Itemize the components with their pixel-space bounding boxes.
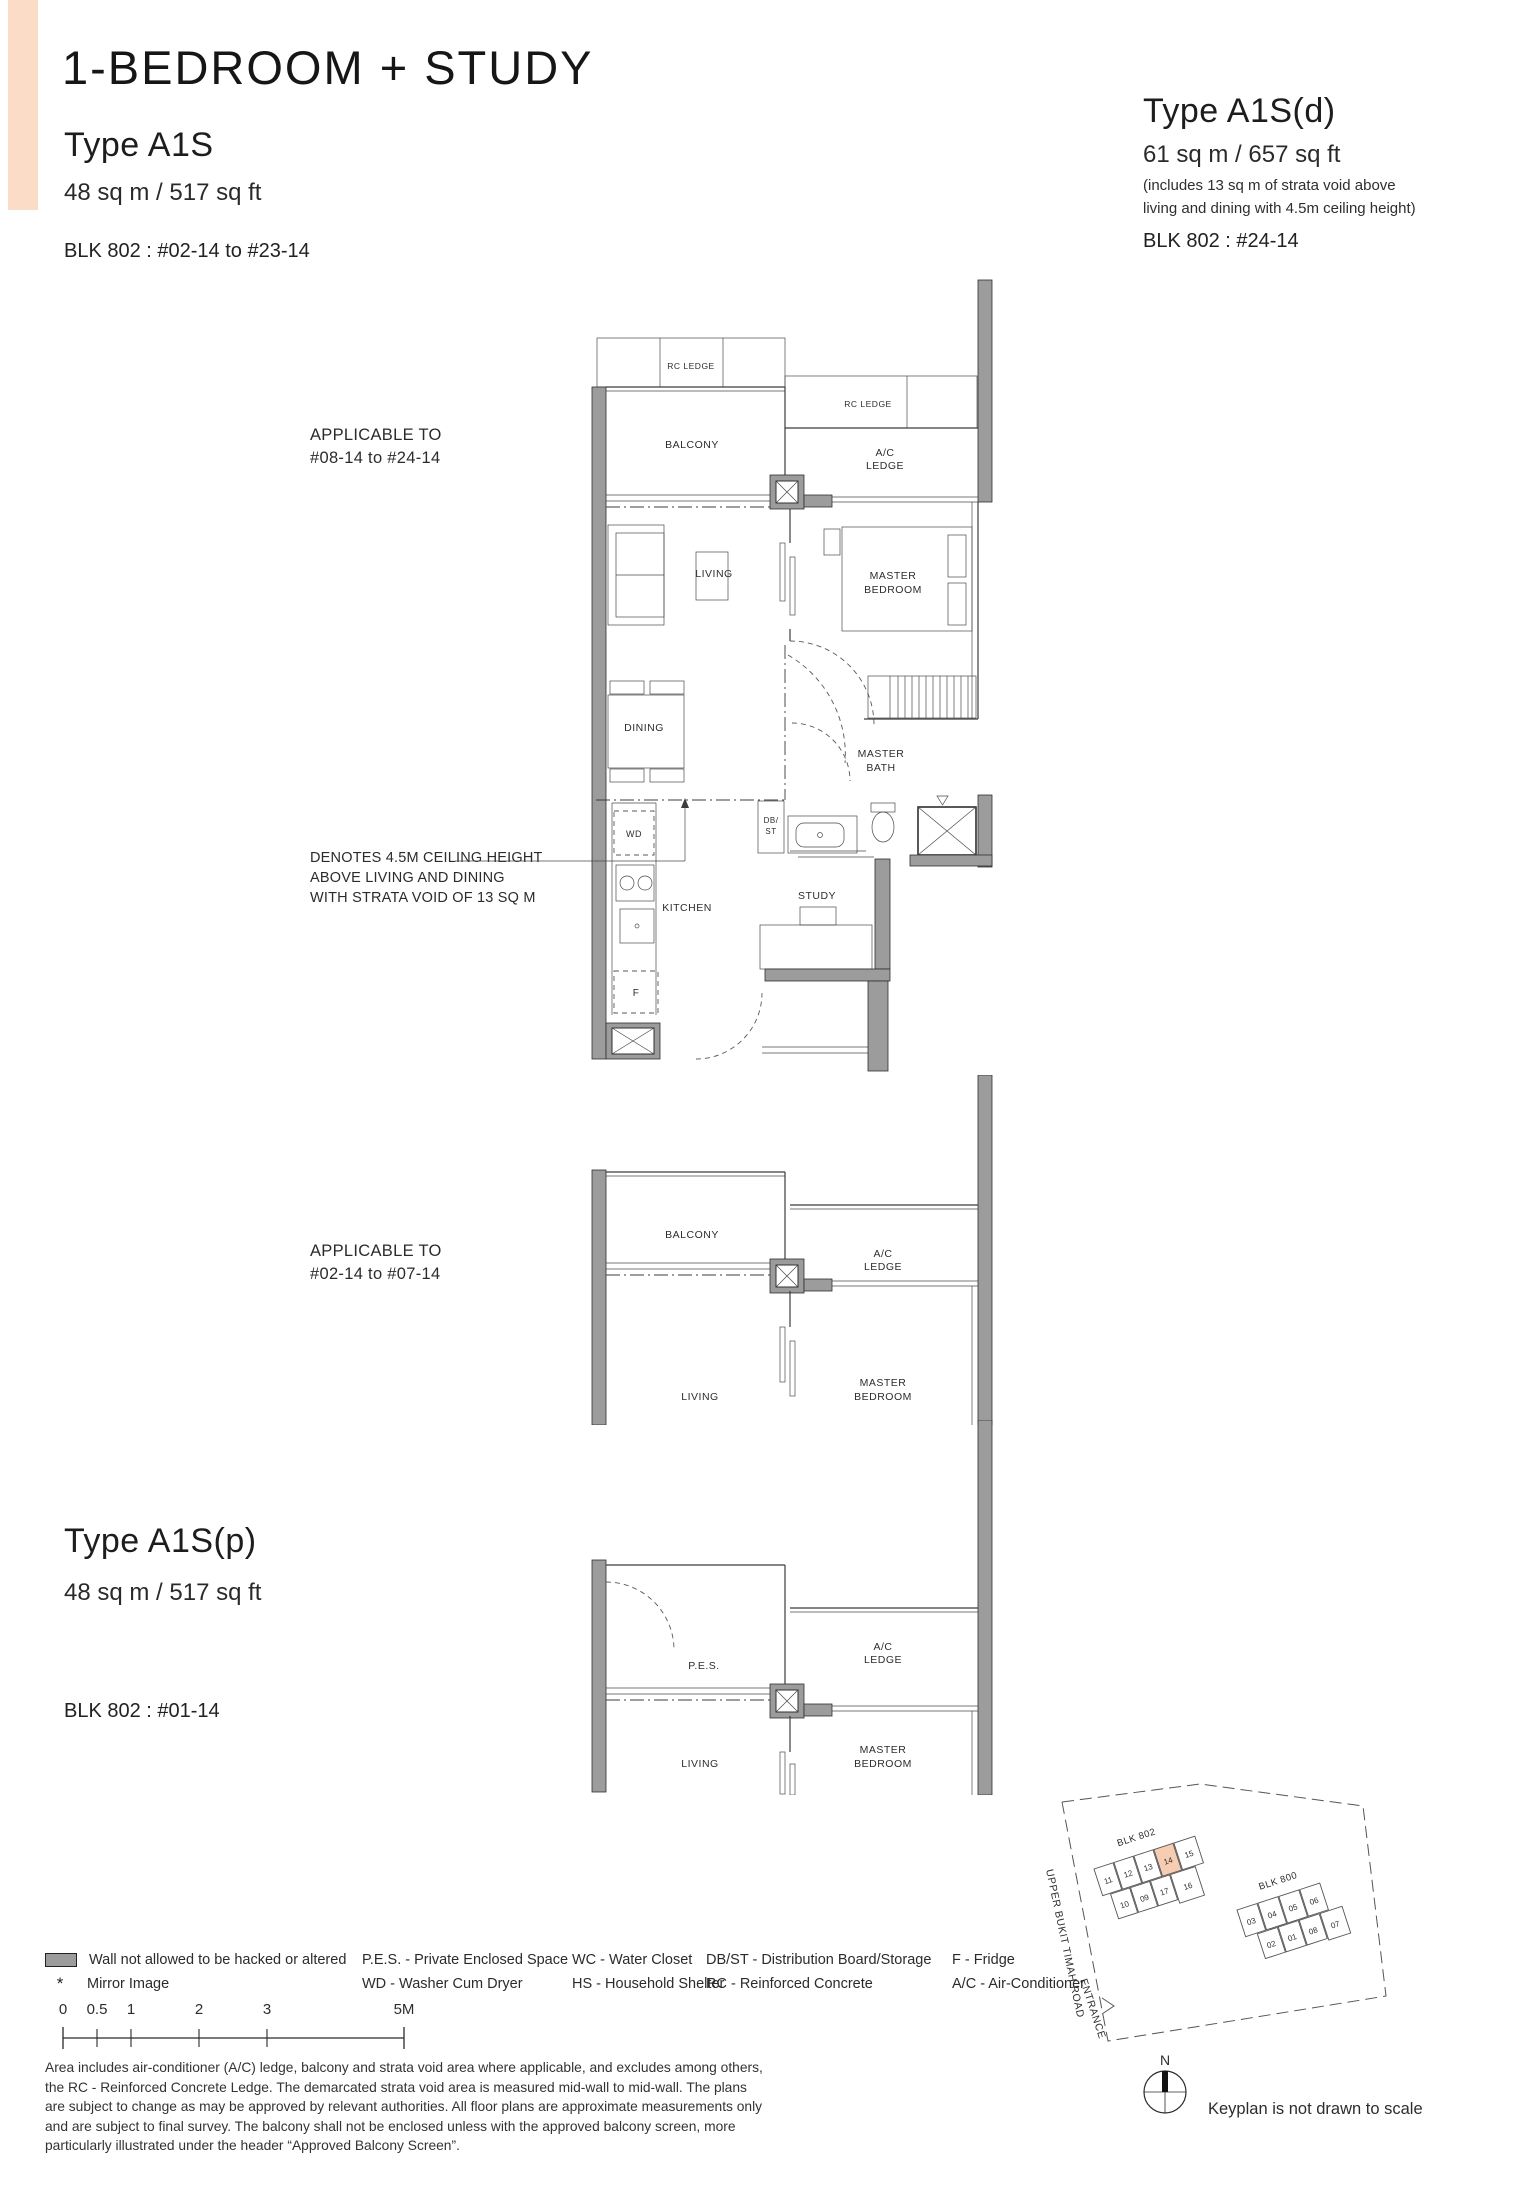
wall-right-top: [978, 280, 992, 502]
legend-item: WD - Washer Cum Dryer: [362, 1972, 568, 1996]
type-a1s-name: Type A1S: [64, 126, 261, 165]
legend-col-wall: Wall not allowed to be hacked or altered…: [45, 1948, 346, 1996]
room-label-bath-1: MASTER: [858, 748, 905, 760]
legend-wall-label: Wall not allowed to be hacked or altered: [89, 1952, 346, 1968]
bath-door-swing: [792, 723, 850, 781]
room-label-ac-1: A/C: [873, 1248, 892, 1260]
type-a1sd-block-range: BLK 802 : #24-14: [1143, 230, 1299, 253]
type-a1sp-block-range: BLK 802 : #01-14: [64, 1700, 220, 1723]
strata-void-boundary: [455, 645, 845, 861]
legend-col-3: DB/ST - Distribution Board/Storage RC - …: [706, 1948, 931, 1996]
wall-swatch: [45, 1953, 77, 1967]
desk: [760, 925, 872, 969]
room-label-study: STUDY: [798, 890, 836, 902]
scale-label-0: 0: [59, 2001, 67, 2018]
wc-bowl: [872, 812, 894, 842]
wall-left: [592, 1170, 606, 1425]
type-a1sp-name: Type A1S(p): [64, 1522, 261, 1561]
room-label-master-1: MASTER: [860, 1744, 907, 1756]
room-label-balcony: BALCONY: [665, 439, 719, 451]
scale-bar: 0 0.5 1 2 3 5M: [45, 1998, 425, 2058]
blk800-label: BLK 800: [1257, 1870, 1298, 1893]
blk802-label: BLK 802: [1116, 1826, 1157, 1849]
wall-right: [978, 1075, 992, 1425]
bedroom-door-swing: [790, 641, 874, 725]
room-label-ac-1: A/C: [875, 447, 894, 459]
keyplan-blk-802: BLK 802 11 12 13 14 15 10 09 17 16: [1087, 1815, 1213, 1925]
type-a1s-block-range: BLK 802 : #02-14 to #23-14: [64, 240, 310, 263]
void-arrow: [681, 798, 689, 808]
room-label-living: LIVING: [681, 1758, 718, 1770]
rc-ledge-top-left: RC LEDGE: [597, 338, 785, 387]
basin: [796, 823, 844, 847]
wardrobe: [868, 676, 976, 718]
entrance-arrow: [1102, 1998, 1114, 2014]
pillow: [948, 535, 966, 577]
type-a1sd-area: 61 sq m / 657 sq ft: [1143, 141, 1416, 169]
floorplan-partial-low-floors: BALCONY A/C LEDGE LIVING MASTER BEDROOM: [420, 1075, 1020, 1425]
wall-study-bottom: [765, 969, 890, 981]
monitor: [800, 907, 836, 925]
chair: [610, 769, 644, 782]
wall-left: [592, 1560, 606, 1792]
wall-lower-right: [868, 981, 888, 1071]
chair: [610, 681, 644, 694]
type-a1sp-area: 48 sq m / 517 sq ft: [64, 1579, 261, 1607]
wall-left: [592, 387, 606, 1059]
floor-trap: [937, 796, 948, 805]
legend-item: DB/ST - Distribution Board/Storage: [706, 1948, 931, 1972]
nightstand: [824, 529, 840, 555]
type-a1sd-area-note-2: living and dining with 4.5m ceiling heig…: [1143, 197, 1416, 220]
balcony: BALCONY: [606, 387, 785, 507]
legend-col-1: P.E.S. - Private Enclosed Space WD - Was…: [362, 1948, 568, 1996]
study: STUDY: [760, 859, 890, 1071]
floorplan-page: 1-BEDROOM + STUDY Type A1S 48 sq m / 517…: [0, 0, 1536, 2208]
scale-label-05: 0.5: [87, 2001, 108, 2018]
type-a1sp-block: Type A1S(p) 48 sq m / 517 sq ft: [64, 1522, 261, 1607]
type-a1s-block: Type A1S 48 sq m / 517 sq ft: [64, 126, 261, 207]
wall-study-right: [875, 859, 890, 969]
scale-label-2: 2: [195, 2001, 203, 2018]
mirror-image-icon: *: [45, 1974, 75, 1994]
room-label-ac-2: LEDGE: [866, 460, 904, 472]
room-label-ac-2: LEDGE: [864, 1261, 902, 1273]
corner-pillar: [770, 475, 832, 509]
living-room: LIVING: [608, 525, 733, 625]
type-a1sd-area-note-1: (includes 13 sq m of strata void above: [1143, 174, 1416, 197]
wall-bath-bottom: [910, 855, 992, 866]
type-a1sd-name: Type A1S(d): [1143, 92, 1416, 131]
keyplan-caption: Keyplan is not drawn to scale: [1208, 2100, 1423, 2118]
road-label: UPPER BUKIT TIMAH ROAD: [1043, 1868, 1086, 2019]
room-label-bath-2: BATH: [866, 762, 895, 774]
room-label-dbst-2: ST: [765, 827, 776, 836]
room-label-rc-ledge-2: RC LEDGE: [844, 399, 891, 409]
scale-label-5m: 5M: [394, 2001, 415, 2018]
entry-door-swing: [696, 993, 762, 1059]
dining-area: DINING: [608, 681, 684, 782]
hob: [616, 865, 654, 901]
room-label-dining: DINING: [624, 722, 664, 734]
kitchen: WD F KITCHEN: [612, 803, 712, 1015]
type-a1sd-block: Type A1S(d) 61 sq m / 657 sq ft (include…: [1143, 92, 1416, 220]
room-label-rc-ledge-1: RC LEDGE: [667, 361, 714, 371]
household-shelter: [606, 1023, 660, 1059]
room-label-pes: P.E.S.: [688, 1660, 719, 1672]
legend-item: WC - Water Closet: [572, 1948, 724, 1972]
chair: [650, 769, 684, 782]
floorplan-partial-pes: P.E.S. A/C LEDGE LIVING MASTER BEDROOM: [420, 1420, 1020, 1795]
room-label-master-1: MASTER: [870, 570, 917, 582]
legend-item: RC - Reinforced Concrete: [706, 1972, 931, 1996]
legend-item: P.E.S. - Private Enclosed Space: [362, 1948, 568, 1972]
shower: [918, 807, 976, 855]
pes-gate-swing: [606, 1582, 674, 1650]
room-label-wd: WD: [626, 829, 642, 839]
legend-mirror-label: Mirror Image: [87, 1976, 169, 1992]
legend-item: HS - Household Shelter: [572, 1972, 724, 1996]
room-label-master-2: BEDROOM: [854, 1758, 912, 1770]
room-label-fridge: F: [633, 988, 640, 999]
room-label-master-2: BEDROOM: [864, 584, 922, 596]
rc-ledge-top-right: RC LEDGE: [785, 376, 977, 428]
room-label-dbst-1: DB/: [764, 816, 779, 825]
room-label-living: LIVING: [681, 1391, 718, 1403]
master-bath: MASTER BATH DB/ ST: [758, 719, 992, 867]
room-label-master-2: BEDROOM: [854, 1391, 912, 1403]
scale-label-3: 3: [263, 2001, 271, 2018]
room-label-balcony: BALCONY: [665, 1229, 719, 1241]
room-label-master-1: MASTER: [860, 1377, 907, 1389]
room-label-ac-1: A/C: [873, 1641, 892, 1653]
sink: [620, 909, 654, 943]
accent-bar: [8, 0, 38, 210]
keyplan: BLK 802 11 12 13 14 15 10 09 17 16 BLK 8…: [1030, 1750, 1530, 2180]
master-bedroom: MASTER BEDROOM: [824, 502, 978, 719]
wall-right: [978, 1420, 992, 1795]
corner-pillar: [770, 1684, 832, 1718]
room-label-ac-2: LEDGE: [864, 1654, 902, 1666]
type-a1s-area: 48 sq m / 517 sq ft: [64, 179, 261, 207]
north-compass-icon: N: [1144, 2052, 1186, 2113]
ac-ledge: A/C LEDGE: [785, 428, 978, 502]
north-label: N: [1160, 2052, 1170, 2068]
wc-tank: [871, 803, 895, 812]
pillow: [948, 583, 966, 625]
room-label-living: LIVING: [695, 568, 732, 580]
room-label-kitchen: KITCHEN: [662, 902, 712, 914]
floorplan-main: RC LEDGE RC LEDGE BALCONY: [420, 195, 1020, 1075]
compass-needle: [1162, 2071, 1168, 2092]
legend-col-2: WC - Water Closet HS - Household Shelter: [572, 1948, 724, 1996]
corner-pillar: [770, 1259, 832, 1293]
disclaimer-text: Area includes air-conditioner (A/C) ledg…: [45, 2058, 767, 2156]
chair: [650, 681, 684, 694]
scale-label-1: 1: [127, 2001, 135, 2018]
page-title: 1-BEDROOM + STUDY: [62, 40, 594, 95]
keyplan-blk-800: BLK 800 03 04 05 06 02 01 08 07: [1231, 1860, 1351, 1964]
